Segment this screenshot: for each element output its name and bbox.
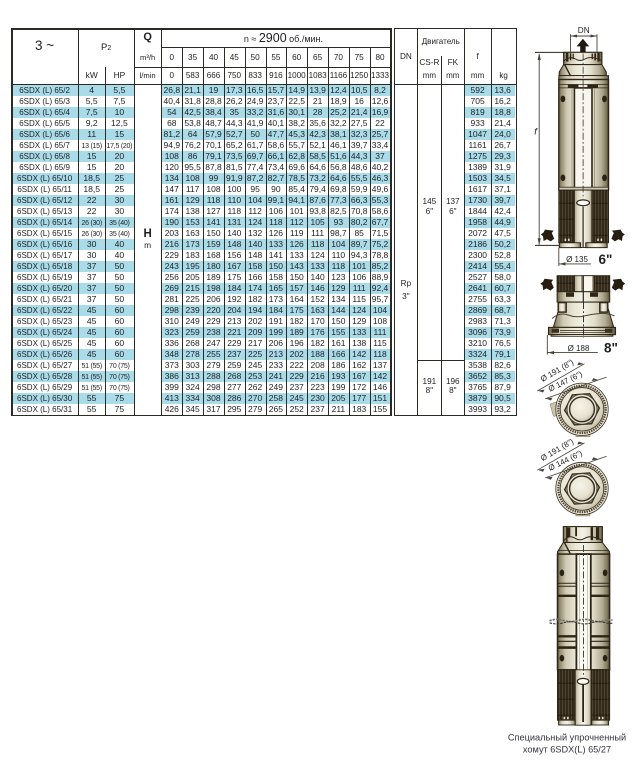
svg-text:Ø 188: Ø 188: [568, 344, 590, 353]
svg-text:хомут 6SDX(L) 65/27: хомут 6SDX(L) 65/27: [523, 744, 611, 754]
svg-text:DN: DN: [578, 26, 590, 35]
svg-text:6": 6": [599, 252, 613, 267]
svg-text:f: f: [534, 127, 538, 138]
svg-text:8": 8": [604, 341, 618, 356]
svg-text:Специальный упрочненный: Специальный упрочненный: [508, 732, 626, 742]
svg-text:Ø 135: Ø 135: [566, 255, 588, 264]
